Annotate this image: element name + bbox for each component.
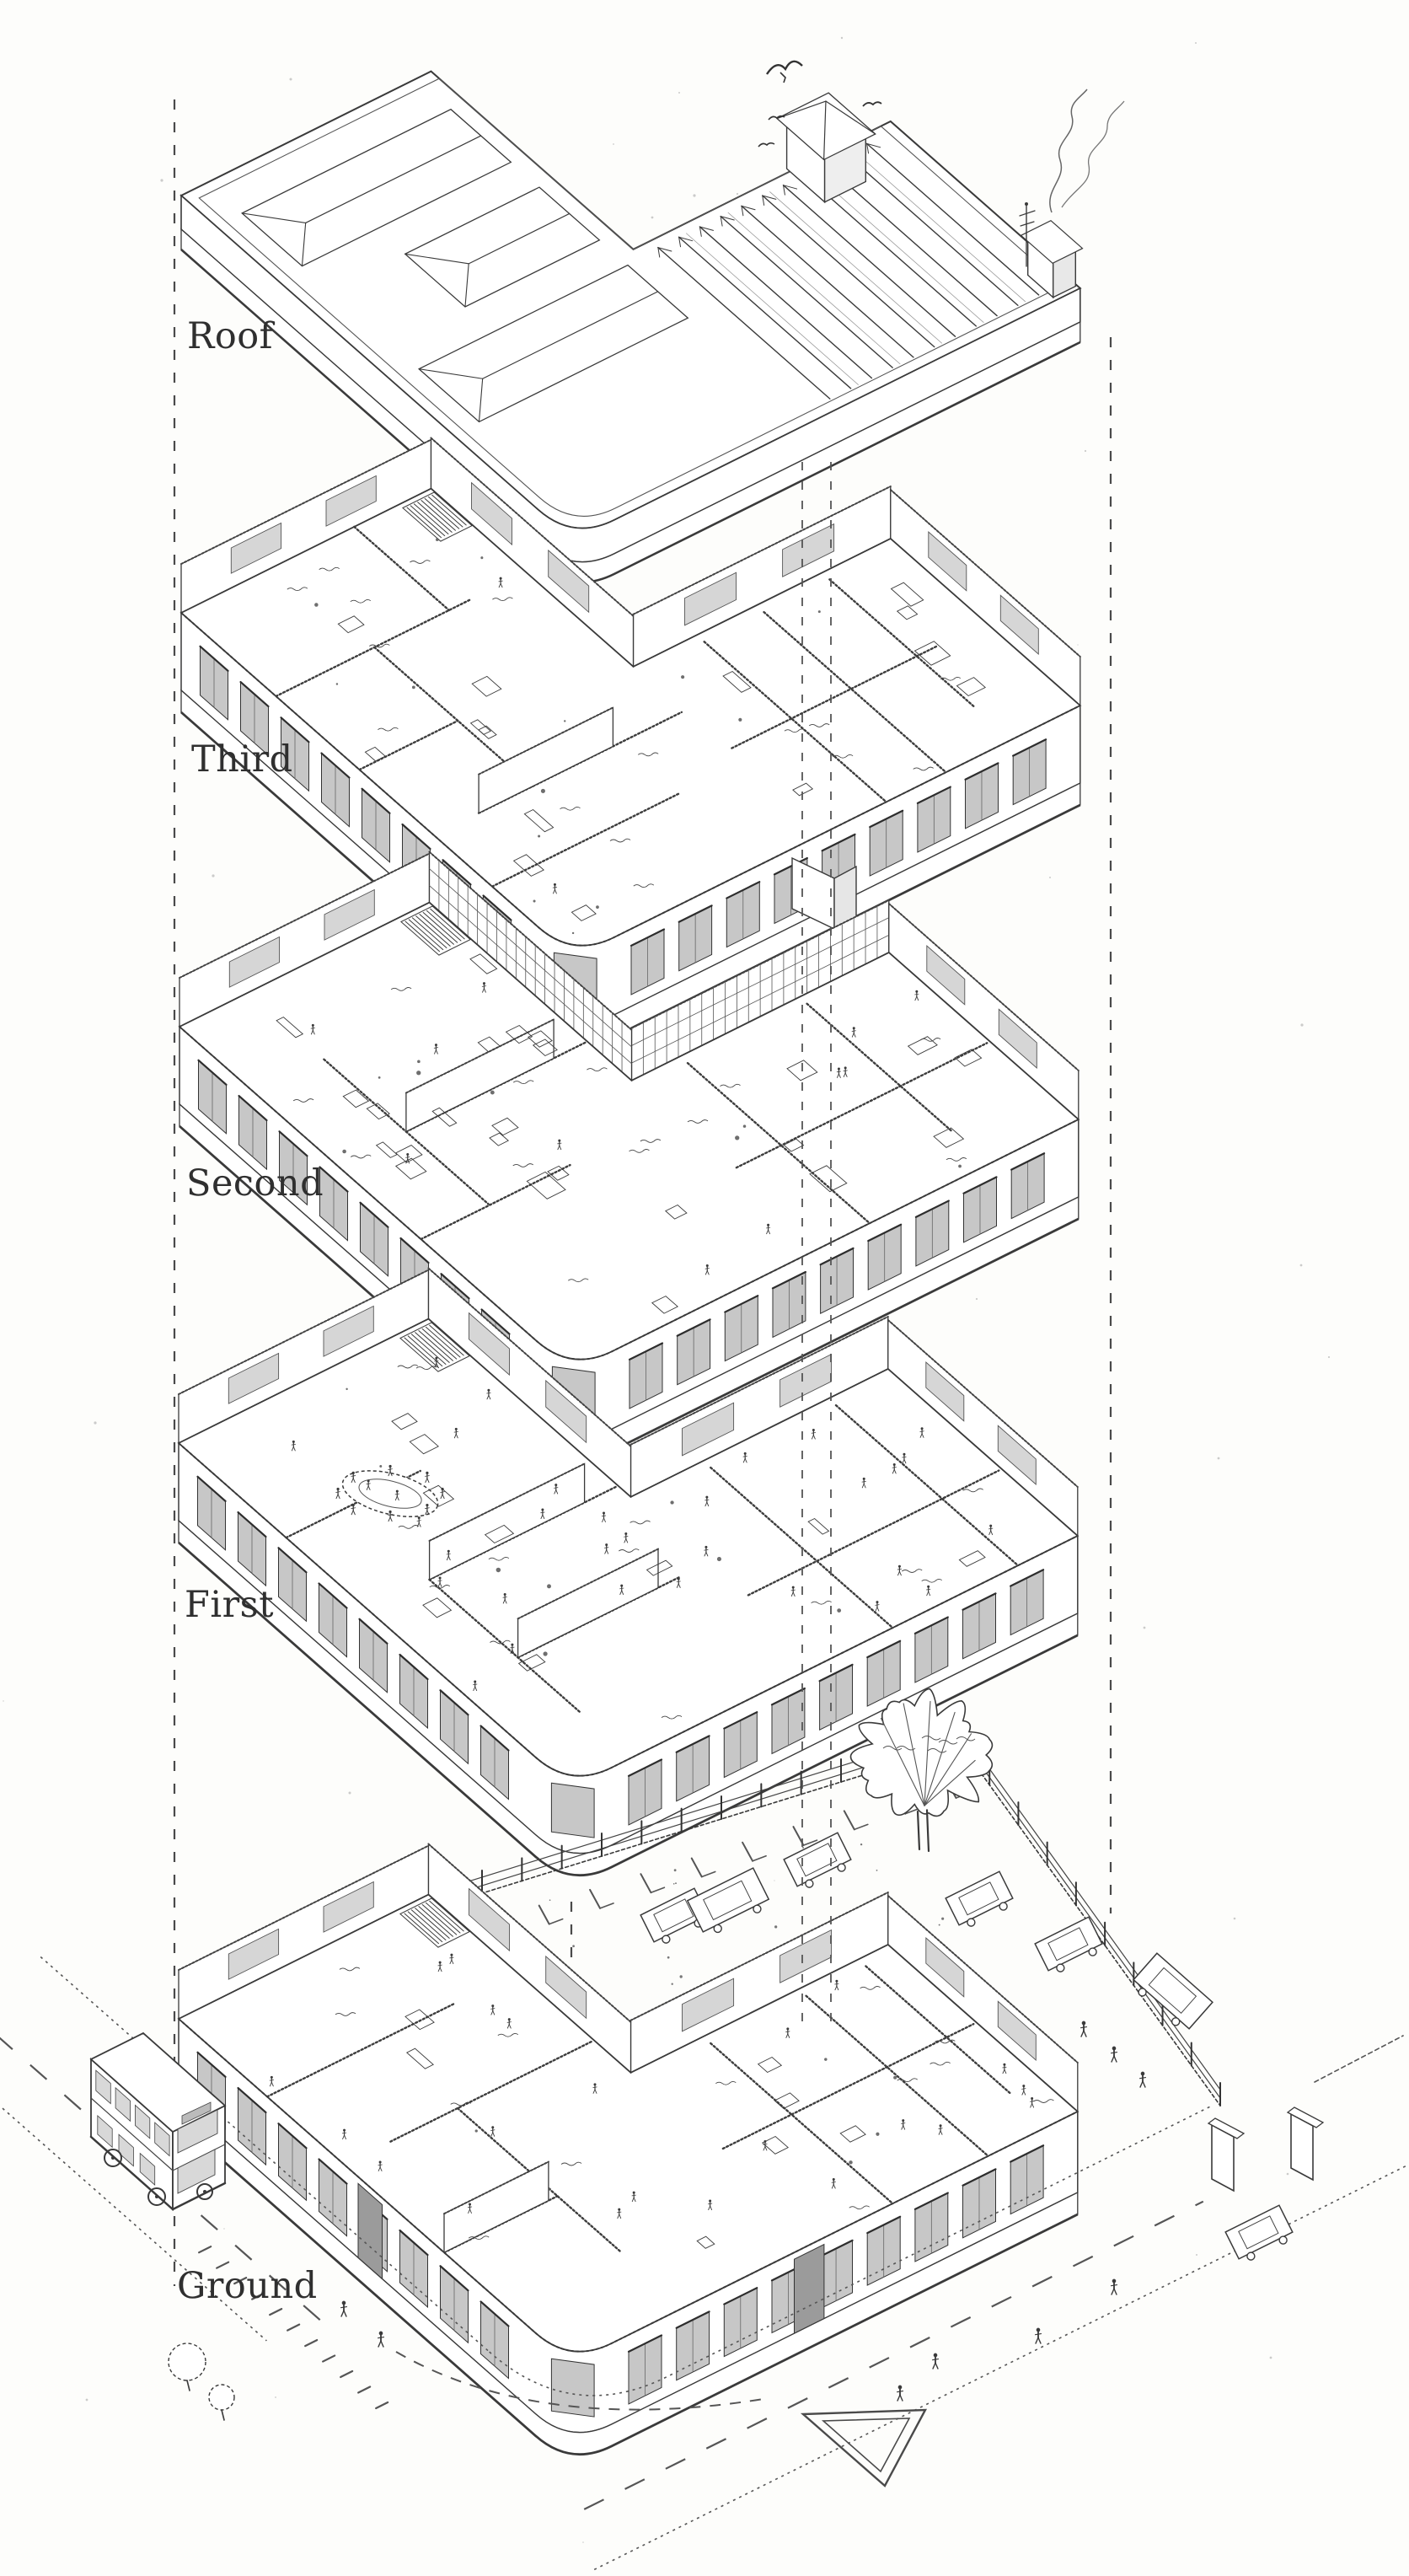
bird-icon bbox=[863, 102, 881, 106]
bird-icon bbox=[758, 143, 774, 147]
exploded-axonometric-drawing bbox=[0, 0, 1409, 2576]
label-first: First bbox=[185, 1584, 274, 1626]
ground-floor-building bbox=[179, 1844, 1078, 2455]
drawing-page: Roof Third Second First Ground bbox=[0, 0, 1409, 2576]
label-roof: Roof bbox=[187, 315, 273, 357]
label-third: Third bbox=[191, 738, 293, 781]
label-second: Second bbox=[186, 1162, 324, 1205]
shrubs bbox=[169, 2343, 234, 2420]
chimney-smoke bbox=[1050, 89, 1124, 212]
gate-piers bbox=[1208, 2107, 1323, 2191]
label-ground: Ground bbox=[177, 2265, 318, 2307]
give-way-triangle bbox=[803, 2410, 925, 2486]
street-car bbox=[1225, 2205, 1293, 2260]
bird-icon bbox=[767, 62, 802, 74]
